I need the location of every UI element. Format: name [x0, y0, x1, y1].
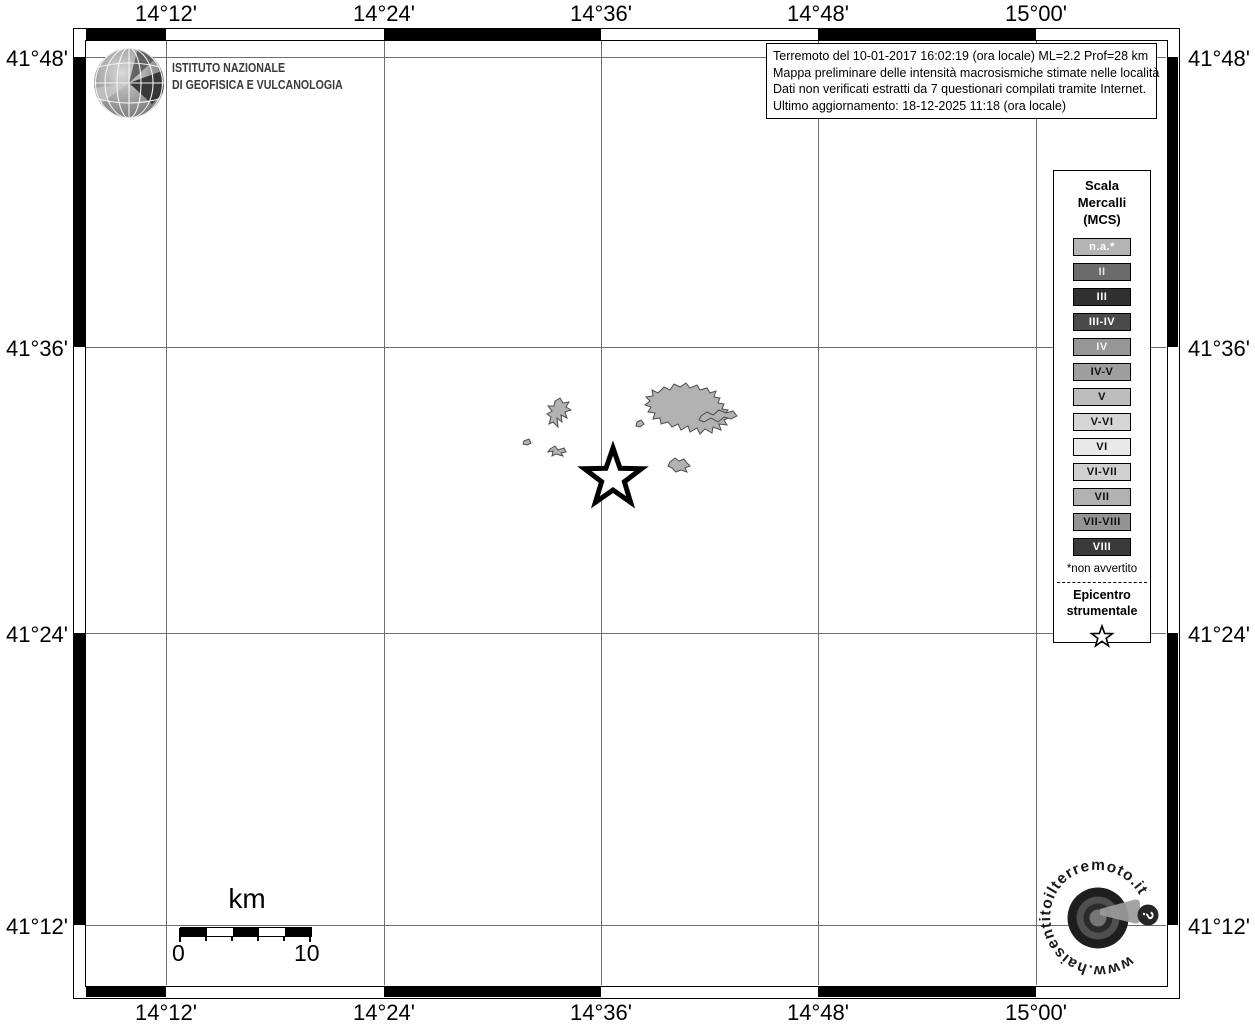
- scale-tick: [257, 936, 259, 941]
- scale-unit-label: km: [197, 883, 297, 915]
- mcs-item-iii-iv: III-IV: [1073, 313, 1131, 331]
- mcs-item-na: n.a.*: [1073, 238, 1131, 256]
- mcs-item-ii: II: [1073, 263, 1131, 281]
- scale-tick: [283, 936, 285, 941]
- macroseismic-map: 14°12' 14°24' 14°36' 14°48' 15°00' 14°12…: [0, 0, 1255, 1024]
- mcs-item-vi: VI: [1073, 438, 1131, 456]
- locality-shapes: [523, 383, 737, 472]
- legend-star-icon: [1089, 624, 1115, 650]
- locality-small: [547, 398, 571, 427]
- legend-divider: [1057, 582, 1147, 583]
- scale-seg: [181, 928, 207, 936]
- locality-small: [548, 446, 566, 456]
- mcs-item-iii: III: [1073, 288, 1131, 306]
- legend-epicenter-title: Epicentro strumentale: [1054, 587, 1150, 620]
- scale-seg: [233, 928, 259, 936]
- legend-title: Scala Mercalli (MCS): [1054, 178, 1150, 229]
- legend-footnote: *non avvertito: [1054, 563, 1150, 575]
- seismograph-target-icon: ?: [1068, 888, 1159, 949]
- haisentito-logo: ? www.haisentitoilterremoto.it: [1023, 843, 1173, 993]
- legend-items: n.a.* II III III-IV IV IV-V V V-VI VI VI…: [1054, 238, 1150, 556]
- mcs-item-v-vi: V-VI: [1073, 413, 1131, 431]
- mcs-item-vi-vii: VI-VII: [1073, 463, 1131, 481]
- mcs-item-vii-viii: VII-VIII: [1073, 513, 1131, 531]
- scale-tick: [231, 936, 233, 941]
- scale-start-label: 0: [172, 940, 185, 967]
- locality-large: [645, 383, 731, 434]
- mcs-item-viii: VIII: [1073, 538, 1131, 556]
- locality-small: [668, 458, 690, 472]
- locality-small: [636, 420, 644, 427]
- scale-seg: [259, 928, 285, 936]
- scale-bar: [180, 927, 312, 937]
- mcs-legend: Scala Mercalli (MCS) n.a.* II III III-IV…: [1053, 170, 1151, 643]
- epicenter-star-icon: [585, 448, 642, 502]
- locality-small: [523, 439, 531, 445]
- mcs-item-iv-v: IV-V: [1073, 363, 1131, 381]
- scale-tick: [205, 936, 207, 941]
- scale-seg: [207, 928, 233, 936]
- mcs-item-vii: VII: [1073, 488, 1131, 506]
- mcs-item-iv: IV: [1073, 338, 1131, 356]
- mcs-item-v: V: [1073, 388, 1131, 406]
- scale-seg: [285, 928, 311, 936]
- scale-end-label: 10: [294, 940, 320, 967]
